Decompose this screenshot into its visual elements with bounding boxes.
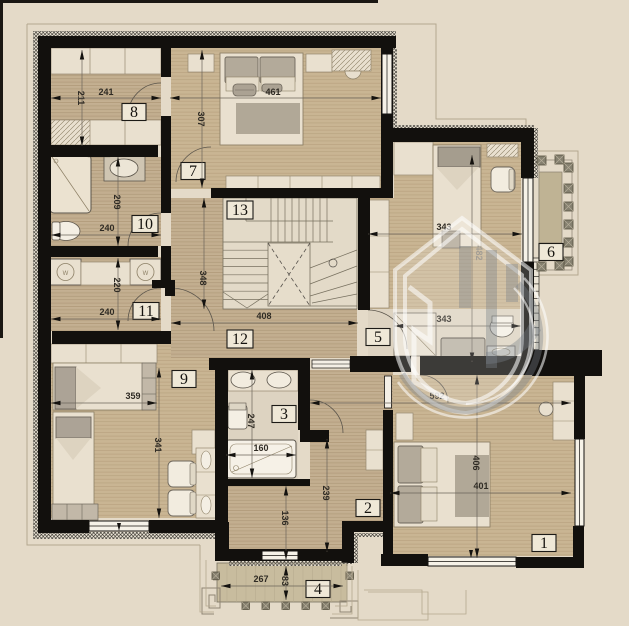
svg-text:239: 239 [321,485,331,500]
svg-text:1: 1 [540,535,548,552]
svg-text:11: 11 [138,303,153,320]
svg-text:13: 13 [232,202,248,219]
svg-text:341: 341 [153,437,163,452]
svg-text:461: 461 [265,87,280,97]
svg-text:240: 240 [99,223,114,233]
svg-text:W: W [143,271,149,277]
svg-text:6: 6 [547,244,555,261]
svg-text:406: 406 [471,455,481,470]
svg-text:209: 209 [112,194,122,209]
svg-text:241: 241 [98,87,113,97]
svg-text:5: 5 [374,329,382,346]
svg-text:160: 160 [253,443,268,453]
svg-text:9: 9 [180,371,188,388]
svg-text:3: 3 [280,406,288,423]
svg-text:359: 359 [125,391,140,401]
svg-text:8: 8 [130,104,138,121]
svg-text:12: 12 [232,331,248,348]
svg-text:307: 307 [196,111,206,126]
svg-text:W: W [63,271,69,277]
svg-text:136: 136 [280,510,290,525]
svg-text:267: 267 [253,574,268,584]
svg-text:247: 247 [246,413,256,428]
svg-text:408: 408 [256,311,271,321]
svg-text:2: 2 [364,500,372,517]
svg-text:10: 10 [137,216,153,233]
svg-text:7: 7 [189,163,197,180]
svg-text:348: 348 [198,270,208,285]
svg-text:401: 401 [473,481,488,491]
svg-text:240: 240 [99,307,114,317]
svg-text:83: 83 [280,576,290,586]
svg-text:4: 4 [314,581,322,598]
svg-text:220: 220 [112,277,122,292]
